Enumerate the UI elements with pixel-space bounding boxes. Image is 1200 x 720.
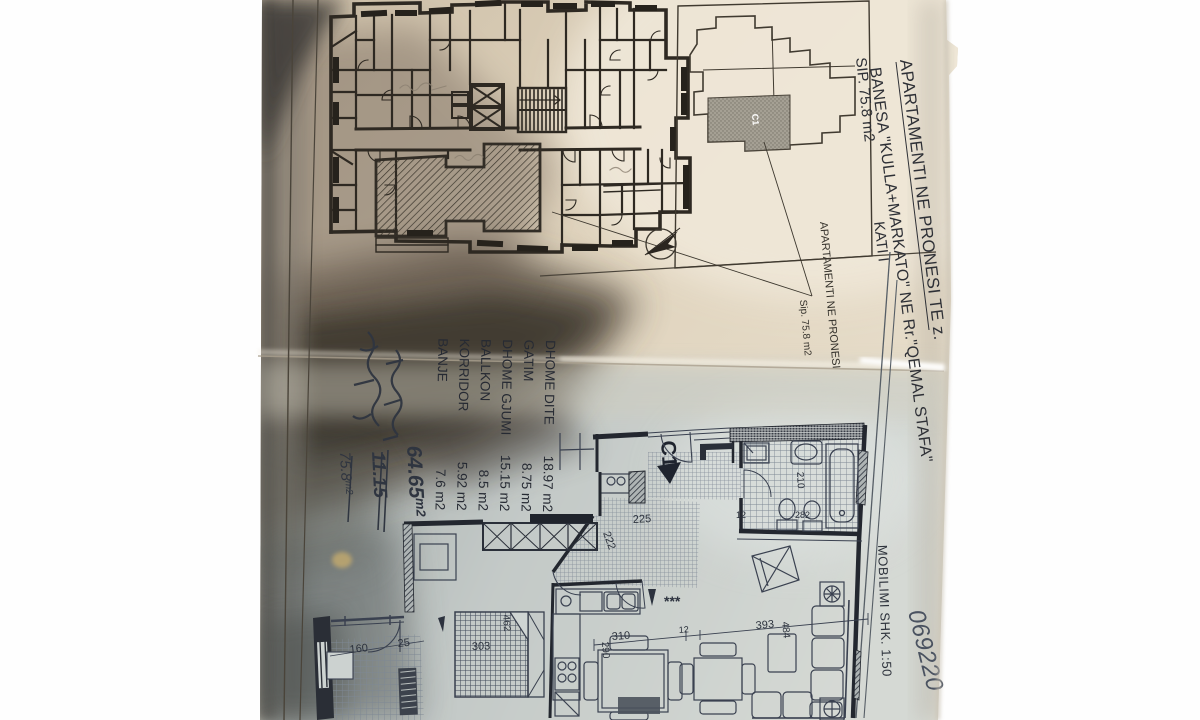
svg-text:303: 303 [472, 640, 491, 653]
svg-text:8.75 m2: 8.75 m2 [519, 463, 535, 512]
svg-text:KORRIDOR: KORRIDOR [456, 338, 472, 411]
svg-text:225: 225 [633, 513, 652, 526]
svg-text:7.6 m2: 7.6 m2 [433, 469, 449, 511]
svg-text:15.15 m2: 15.15 m2 [497, 455, 513, 512]
svg-text:GATIM: GATIM [521, 340, 537, 382]
svg-text:310: 310 [611, 630, 630, 643]
svg-text:484: 484 [779, 621, 792, 639]
svg-text:DHOME DITE: DHOME DITE [542, 340, 558, 425]
svg-text:160: 160 [349, 642, 369, 656]
svg-text:12: 12 [678, 624, 689, 635]
svg-text:BALLKON: BALLKON [477, 339, 493, 402]
svg-text:C1: C1 [750, 113, 761, 125]
svg-text:***: *** [664, 593, 681, 609]
svg-text:462: 462 [500, 614, 512, 632]
svg-text:11.15: 11.15 [367, 451, 390, 499]
svg-text:DHOME GJUMI: DHOME GJUMI [498, 339, 515, 435]
svg-text:8.5 m2: 8.5 m2 [476, 470, 492, 512]
svg-text:210: 210 [794, 472, 806, 490]
svg-text:290: 290 [599, 641, 611, 659]
svg-text:25: 25 [397, 637, 410, 650]
svg-text:282: 282 [795, 510, 810, 520]
svg-text:393: 393 [755, 618, 774, 632]
svg-text:BANJE: BANJE [435, 338, 451, 382]
svg-text:5.92 m2: 5.92 m2 [454, 462, 470, 511]
svg-text:12: 12 [736, 510, 746, 520]
svg-text:18.97 m2: 18.97 m2 [540, 456, 556, 513]
